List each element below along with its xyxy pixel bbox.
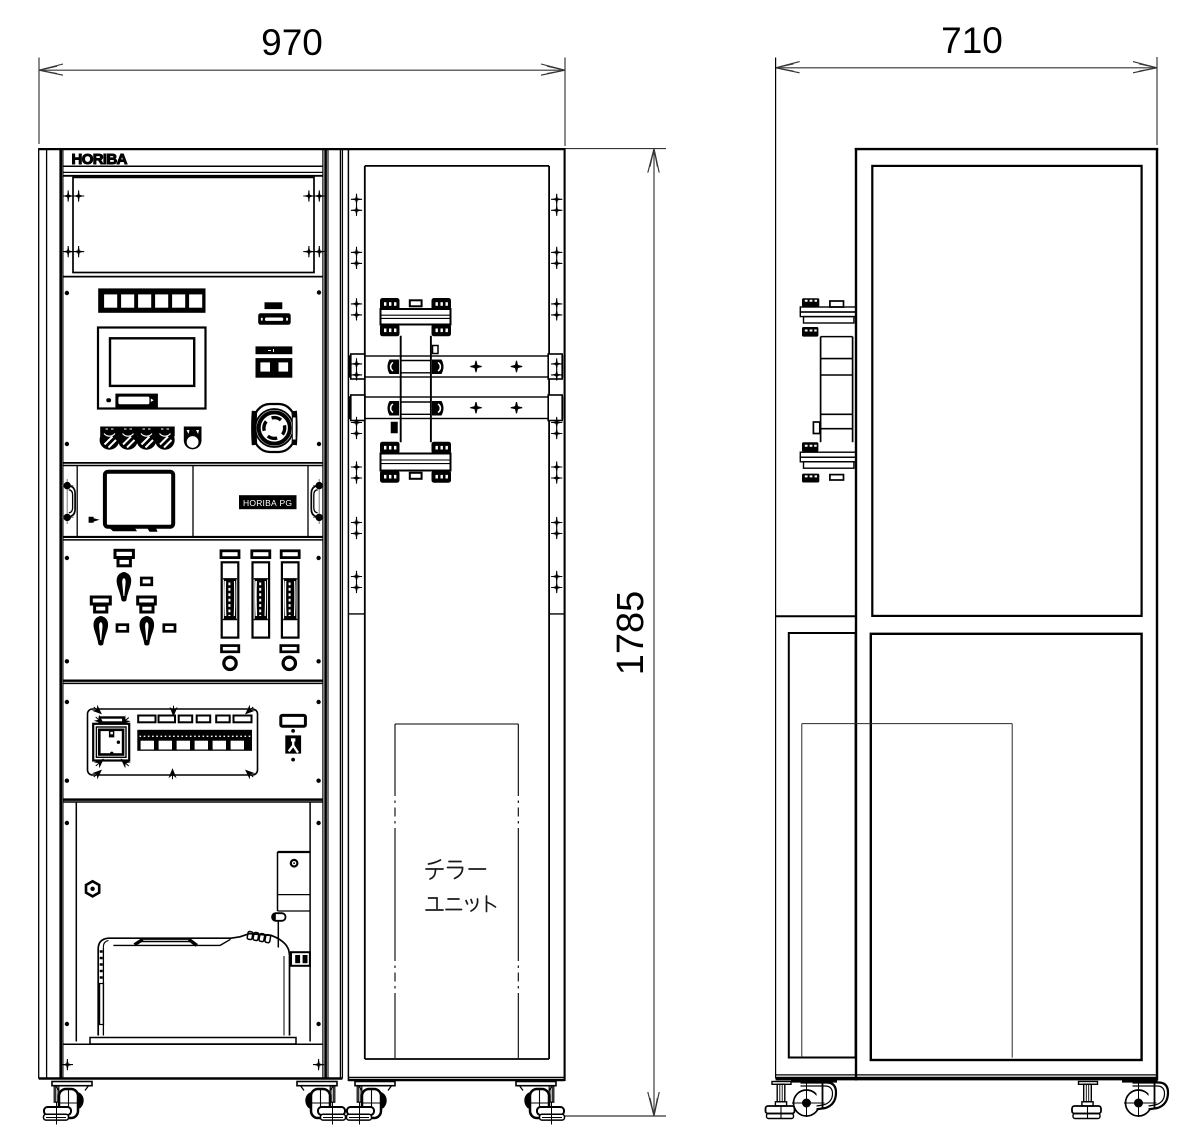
svg-text:970: 970: [261, 22, 323, 63]
svg-text:HORIBA PG: HORIBA PG: [243, 498, 292, 508]
svg-text:1785: 1785: [610, 591, 652, 676]
svg-text:710: 710: [941, 20, 1003, 61]
svg-text:HORIBA: HORIBA: [72, 151, 128, 168]
